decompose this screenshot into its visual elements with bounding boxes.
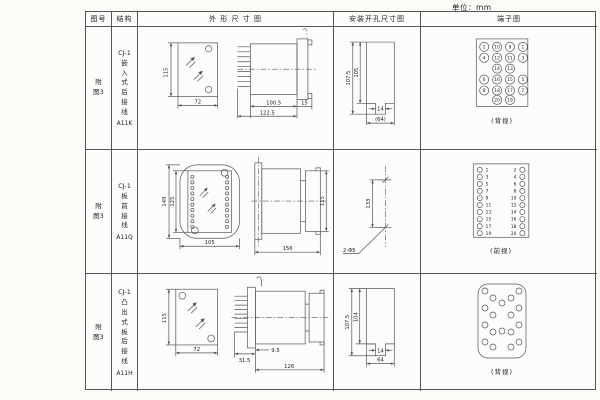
front-view: 115 72 xyxy=(164,43,218,108)
terminal-number: 13 xyxy=(486,210,492,216)
dimension-label: 122.5 xyxy=(260,110,275,116)
terminal-number: 19 xyxy=(507,97,513,103)
front-view: 115 72 xyxy=(162,289,218,356)
terminal-cell-row1: 2 10 9 1 4 12 11 3 14 13 6 16 15 5 8 18 xyxy=(421,27,597,150)
terminal-number: 10 xyxy=(511,196,517,202)
dimension-label: 72 xyxy=(194,99,201,105)
dimension-label: 105 xyxy=(354,68,360,78)
terminal-number: 19 xyxy=(486,231,492,237)
mounting-drawing-row2: 133 2-Φ5 xyxy=(334,150,420,273)
terminal-number: 8 xyxy=(514,189,517,195)
view-caption: (背视) xyxy=(491,367,513,376)
terminal-number: 17 xyxy=(507,88,513,94)
dimension-label: 9.5 xyxy=(271,348,279,354)
dimension-label: 31.5 xyxy=(239,358,251,364)
terminal-number: 5 xyxy=(521,77,524,83)
dimension-label: 105 xyxy=(205,240,215,246)
terminal-number: 8 xyxy=(483,88,486,94)
drill-pattern: 133 2-Φ5 xyxy=(343,166,391,254)
terminal-drawing-row2: 1 3 5 7 9 11 13 15 17 19 2 4 6 8 10 12 1 xyxy=(421,150,597,273)
structure-model: CJ-1 xyxy=(118,288,131,296)
header-cell-terminal: 端子图 xyxy=(421,12,597,27)
terminal-strip: 1 3 5 7 9 11 13 15 17 19 2 4 6 8 10 12 1 xyxy=(473,164,529,255)
dimension-label: 14 xyxy=(377,349,384,355)
terminal-number: 10 xyxy=(494,44,500,50)
dimension-label: 126 xyxy=(284,364,295,370)
terminal-number: 18 xyxy=(494,88,500,94)
terminal-number: 15 xyxy=(507,77,513,83)
terminal-number: 11 xyxy=(486,203,492,209)
front-view: 149 125 105 xyxy=(162,165,239,249)
terminal-cell-row2: 1 3 5 7 9 11 13 15 17 19 2 4 6 8 10 12 1 xyxy=(421,150,597,274)
mounting-cell-row1: 107.5 105 14 (64) xyxy=(334,27,421,150)
dimension-label: 107.5 xyxy=(346,71,352,86)
outline-cell-row3: 115 72 3 xyxy=(138,274,334,391)
dimension-label: 156 xyxy=(283,246,294,252)
terminal-drawing-row1: 2 10 9 1 4 12 11 3 14 13 6 16 15 5 8 18 xyxy=(421,27,597,149)
dimension-label: 72 xyxy=(193,347,200,353)
structure-model: CJ-1 xyxy=(118,182,131,190)
dimension-label: 15 xyxy=(301,100,308,106)
structure-desc: 板前接线 xyxy=(119,192,130,231)
terminal-number: 13 xyxy=(507,66,513,72)
terminal-number: 15 xyxy=(486,217,492,223)
terminal-number: 4 xyxy=(514,174,517,180)
header-cell-mounting: 安装开孔尺寸图 xyxy=(334,12,421,27)
dimension-label: 104 xyxy=(354,312,360,323)
side-view: 31.5 9.5 126 xyxy=(232,277,329,373)
dimension-label: (64) xyxy=(375,117,386,123)
figure-cell-row2: 附图3 xyxy=(86,150,112,274)
dimension-label: 64 xyxy=(377,358,384,364)
terminal-number: 4 xyxy=(483,55,486,61)
structure-desc: 嵌入式后接线 xyxy=(119,59,130,118)
dimension-label: 149 xyxy=(162,197,168,207)
adjust-arrow-icon xyxy=(186,57,195,68)
terminal-number: 11 xyxy=(507,55,513,61)
terminal-number: 6 xyxy=(514,182,517,188)
terminal-number: 14 xyxy=(511,210,517,216)
structure-cell-row2: CJ-1 板前接线 A11Q xyxy=(112,150,138,274)
dimension-label: 133 xyxy=(366,199,372,209)
figure-number: 附图3 xyxy=(93,78,104,98)
view-caption: (背视) xyxy=(491,116,513,125)
structure-cell-row1: CJ-1 嵌入式后接线 A11K xyxy=(112,27,138,150)
adjust-arrow-icon xyxy=(194,71,203,82)
terminal-number: 20 xyxy=(494,97,500,103)
dimension-label: 125 xyxy=(170,197,176,207)
dimension-label: 107.5 xyxy=(345,315,351,330)
terminal-number: 1 xyxy=(486,167,489,173)
terminal-cell-row3: (背视) xyxy=(421,274,597,391)
figure-cell-row1: 附图3 xyxy=(86,27,112,150)
terminal-number: 9 xyxy=(486,196,489,202)
terminal-number: 9 xyxy=(509,44,512,50)
figure-cell-row3: 附图3 xyxy=(86,274,112,391)
header-cell-structure: 结构 xyxy=(112,12,138,27)
mounting-drawing-row1: 107.5 105 14 (64) xyxy=(334,27,420,149)
hole-callout: 2-Φ5 xyxy=(343,248,356,254)
terminal-number: 6 xyxy=(483,77,486,83)
terminal-number: 3 xyxy=(521,55,524,61)
structure-desc: 凸出式板后接线 xyxy=(119,298,130,366)
mounting-drawing-row3: 107.5 104 14 64 xyxy=(334,274,420,391)
terminal-number: 3 xyxy=(486,174,489,180)
terminal-number: 7 xyxy=(521,88,524,94)
outline-drawing-row3: 115 72 3 xyxy=(138,274,333,391)
terminal-number: 16 xyxy=(511,217,517,223)
outline-drawing-row2: 149 125 105 xyxy=(138,150,333,273)
view-caption: (前视) xyxy=(490,246,512,255)
side-view: 100.5 15 122.5 xyxy=(237,29,316,119)
adjust-arrow-icon xyxy=(200,188,208,198)
terminal-number: 12 xyxy=(494,55,500,61)
mounting-cell-row3: 107.5 104 14 64 xyxy=(334,274,421,391)
header-cell-figure: 图号 xyxy=(86,12,112,27)
structure-code: A11K xyxy=(117,120,133,127)
terminal-number: 5 xyxy=(486,182,489,188)
dimension-label: 115 xyxy=(164,68,170,78)
outline-cell-row2: 149 125 105 xyxy=(138,150,334,274)
outline-cell-row1: 115 72 100.5 xyxy=(138,27,334,150)
structure-cell-row3: CJ-1 凸出式板后接线 A11H xyxy=(112,274,138,391)
terminal-drawing-row3: (背视) xyxy=(421,274,597,391)
structure-code: A11H xyxy=(116,370,132,377)
structure-code: A11Q xyxy=(116,234,132,241)
dimension-label: 100.5 xyxy=(266,100,281,106)
dimension-label: 115 xyxy=(162,313,168,323)
terminal-number: 1 xyxy=(521,44,524,50)
mounting-cell-row2: 133 2-Φ5 xyxy=(334,150,421,274)
terminal-grid: (背视) xyxy=(478,284,526,376)
terminal-grid: 2 10 9 1 4 12 11 3 14 13 6 16 15 5 8 18 xyxy=(476,39,528,125)
terminal-number: 14 xyxy=(494,66,500,72)
adjust-arrow-icon xyxy=(188,302,197,313)
terminal-number: 20 xyxy=(511,231,517,237)
header-cell-outline: 外 形 尺 寸 图 xyxy=(138,12,334,27)
adjust-arrow-icon xyxy=(208,204,216,214)
panel-cutout: 107.5 105 14 (64) xyxy=(346,42,394,125)
panel-cutout: 107.5 104 14 64 xyxy=(345,289,394,367)
terminal-number: 2 xyxy=(514,167,517,173)
terminal-number: 12 xyxy=(511,203,517,209)
structure-model: CJ-1 xyxy=(118,49,131,57)
adjust-arrow-icon xyxy=(196,318,205,329)
terminal-number: 7 xyxy=(486,189,489,195)
outline-drawing-row1: 115 72 100.5 xyxy=(138,27,333,149)
dimension-label: 14 xyxy=(377,107,384,113)
dimension-label: 115 xyxy=(320,196,326,206)
terminal-number: 2 xyxy=(483,44,486,50)
figure-number: 附图3 xyxy=(93,323,104,343)
terminal-number: 18 xyxy=(511,224,517,230)
terminal-number: 16 xyxy=(494,77,500,83)
terminal-number: 17 xyxy=(486,224,492,230)
figure-number: 附图3 xyxy=(93,202,104,222)
side-view: 115 156 xyxy=(251,157,328,255)
datasheet-page: 单位：mm 图号 结构 外 形 尺 寸 图 安装开孔尺寸图 端子图 附图3 CJ… xyxy=(0,0,600,400)
spec-table: 图号 结构 外 形 尺 寸 图 安装开孔尺寸图 端子图 附图3 CJ-1 嵌入式… xyxy=(85,11,596,390)
